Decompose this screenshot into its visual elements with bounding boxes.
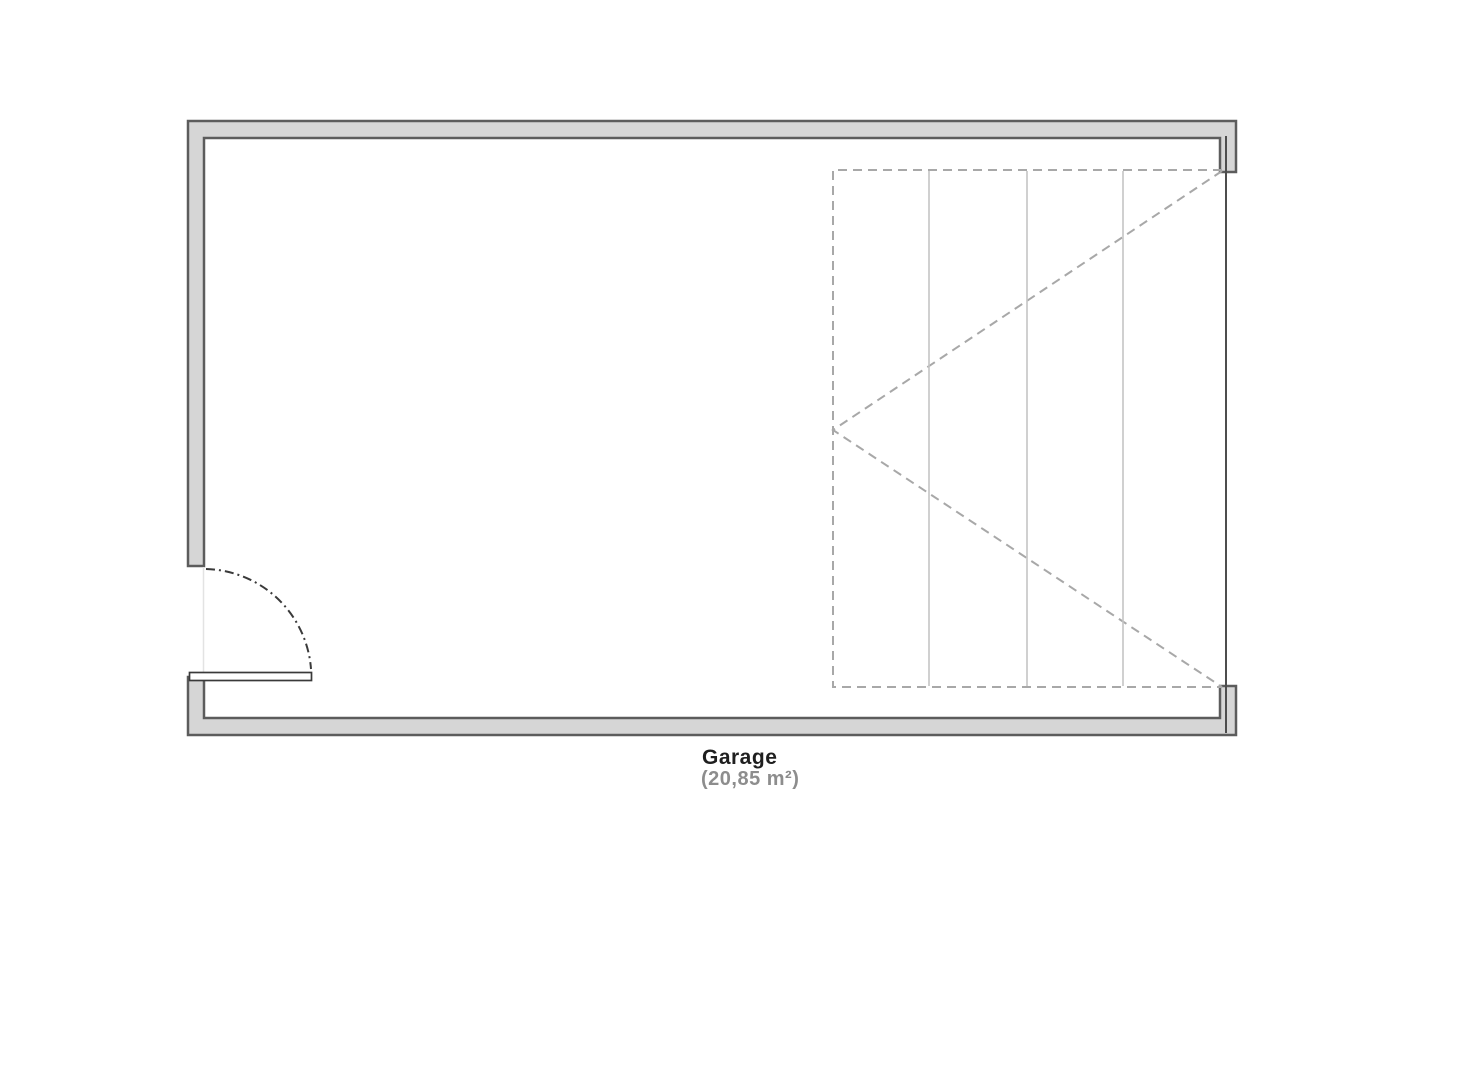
room-name-label: Garage <box>702 746 777 770</box>
garage-floor-plan-drawing <box>0 0 1464 1080</box>
entry-door-swing-arc <box>206 569 311 669</box>
entry-door-leaf <box>190 673 312 681</box>
room-area-label: (20,85 m²) <box>701 768 799 791</box>
entry-door-symbol <box>190 567 312 681</box>
floor-plan-page: Garage (20,85 m²) <box>0 0 1464 1080</box>
wall-top-left-section <box>188 121 1236 566</box>
garage-walls <box>188 121 1236 735</box>
garage-door-symbol <box>833 170 1222 687</box>
wall-bottom-section <box>188 677 1236 735</box>
